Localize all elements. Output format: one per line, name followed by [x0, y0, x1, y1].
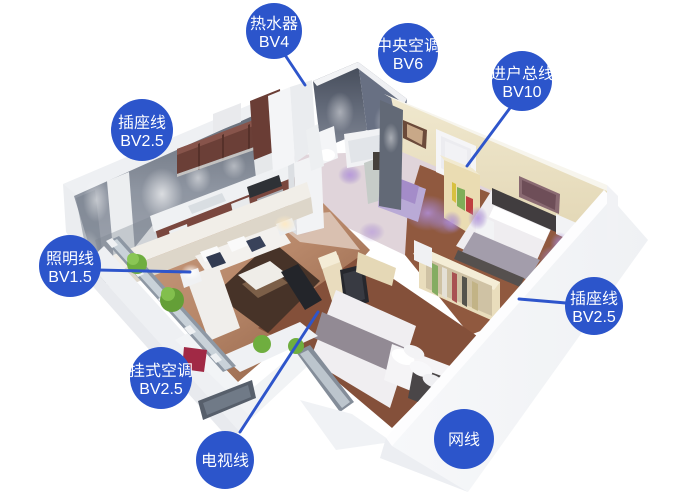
- svg-text:BV2.5: BV2.5: [139, 381, 183, 398]
- svg-text:BV4: BV4: [259, 34, 289, 51]
- svg-text:BV6: BV6: [393, 56, 423, 73]
- svg-text:BV1.5: BV1.5: [48, 269, 92, 286]
- svg-text:BV2.5: BV2.5: [120, 133, 164, 150]
- svg-text:BV10: BV10: [502, 84, 541, 101]
- svg-text:BV2.5: BV2.5: [572, 309, 616, 326]
